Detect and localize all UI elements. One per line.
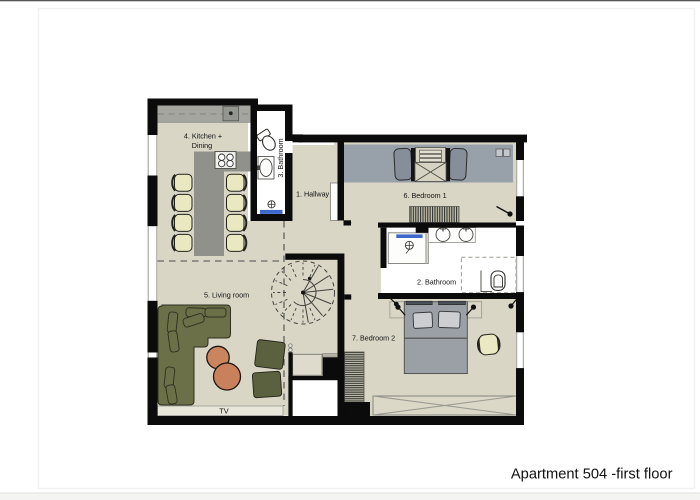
svg-text:2. Bathroom: 2. Bathroom <box>417 277 456 286</box>
svg-text:3. Bathroom: 3. Bathroom <box>276 138 285 177</box>
svg-text:Dining: Dining <box>192 141 212 150</box>
svg-text:5. Living room: 5. Living room <box>204 291 249 300</box>
svg-text:4. Kitchen +: 4. Kitchen + <box>184 132 222 141</box>
svg-text:7. Bedroom 2: 7. Bedroom 2 <box>352 333 395 342</box>
svg-text:1. Hallway: 1. Hallway <box>296 189 330 198</box>
svg-text:Apartment 504 -first floor: Apartment 504 -first floor <box>511 467 673 483</box>
svg-text:6. Bedroom 1: 6. Bedroom 1 <box>404 191 447 200</box>
svg-text:TV: TV <box>219 406 229 415</box>
